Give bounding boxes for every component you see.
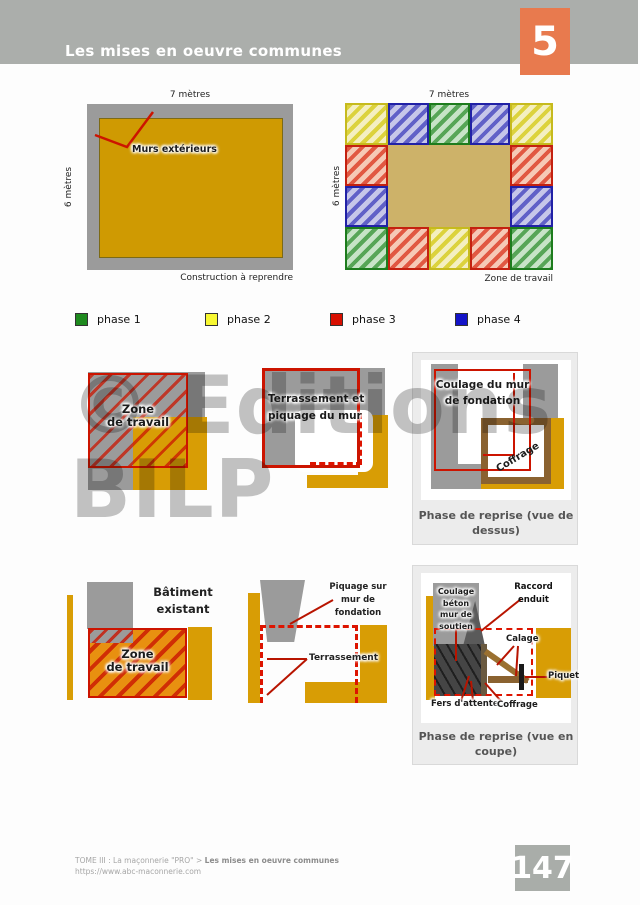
legend-label: phase 4 [477,313,521,326]
footer-breadcrumb: TOME III : La maçonnerie "PRO" > Les mis… [75,855,339,878]
plan-work-phases: 7 mètres 6 mètres Zone de travail [330,85,580,290]
diagram-area: Coulage béton mur de soutien Raccord end… [421,573,571,723]
wall-strip-shape [67,595,73,700]
legend-item: phase 4 [455,313,521,326]
legend-item: phase 3 [330,313,396,326]
terrassement-label: Terrassement et piquage du mur [268,391,364,425]
coulage-inner-line [513,413,515,456]
batiment-label: Bâtiment existant [153,584,213,619]
phase1-tile [510,227,553,270]
card-phase-reprise-coupe: Coulage béton mur de soutien Raccord end… [412,565,578,765]
phase3-swatch [330,313,343,326]
phase2-tile [429,227,470,270]
breadcrumb-prefix: TOME III : La maçonnerie "PRO" > [75,856,205,865]
breadcrumb-current: Les mises en oeuvre communes [205,856,339,865]
manual-page: Les mises en oeuvre communes 5 7 mètres … [0,0,640,905]
callout-leader-lines [60,85,310,290]
existing-building-shape [87,582,133,629]
terrassement-label: Terrassement [309,653,378,663]
plan-existing-construction: 7 mètres 6 mètres Murs extérieurs Constr… [60,85,310,290]
existing-building-shape [88,470,133,490]
legend-item: phase 2 [205,313,271,326]
zone-label: Zone de travail [88,403,188,429]
footer-url: https://www.abc-maconnerie.com [75,866,339,877]
coffrage-label: Coffrage [497,701,538,711]
zone-label: Zone de travail [88,648,187,674]
plan-caption: Zone de travail [345,274,553,284]
fers-attente-label: Fers d'attente [431,700,499,710]
legend-label: phase 2 [227,313,271,326]
phase3-tile [470,227,510,270]
figure-zone-travail-dessus: Zone de travail [70,365,215,497]
raccord-label: Raccord enduit [506,581,561,607]
dimension-side: 6 mètres [332,156,342,216]
callout-murs-exterieurs: Murs extérieurs [132,145,217,156]
phase-grid [345,103,553,270]
new-wall-shape [307,475,388,488]
interior-floor-shape [388,145,510,227]
legend-item: phase 1 [75,313,141,326]
card-phase-reprise-dessus: Coulage du mur de fondation Coffrage Pha… [412,352,578,545]
phase2-swatch [205,313,218,326]
plan-caption: Construction à reprendre [87,273,293,283]
phase3-tile [510,145,553,186]
phase1-tile [345,227,388,270]
figure-terrassement-piquage: Terrassement et piquage du mur [255,365,400,497]
phase1-swatch [75,313,88,326]
phase3-tile [345,145,388,186]
new-wall-shape [188,627,212,700]
figure-piquage-terrassement: Piquage sur mur de fondation Terrassemen… [245,578,390,708]
phase4-tile [470,103,510,145]
card-caption: Phase de reprise (vue en coupe) [413,729,579,760]
page-number-badge: 147 [515,845,570,891]
phase3-tile [388,227,429,270]
phase4-tile [345,186,388,227]
dimension-top: 7 mètres [345,90,553,100]
chapter-number-badge: 5 [520,8,570,75]
wall-footprint-hatch [90,630,133,643]
phase2-tile [510,103,553,145]
legend-label: phase 3 [352,313,396,326]
calage-label: Calage [506,635,538,645]
legend-label: phase 1 [97,313,141,326]
piquet-label: Piquet [548,672,579,682]
phase4-tile [388,103,429,145]
phase4-tile [510,186,553,227]
phase1-tile [429,103,470,145]
phase4-swatch [455,313,468,326]
figure-batiment-existant: Bâtiment existant Zone de travail [65,578,215,708]
card-caption: Phase de reprise (vue de dessus) [413,508,579,539]
page-title: Les mises en oeuvre communes [65,42,342,60]
diagram-area: Coulage du mur de fondation Coffrage [421,360,571,500]
soutien-label: Coulage béton mur de soutien [433,586,479,632]
phase2-tile [345,103,388,145]
coulage-label: Coulage du mur de fondation [434,378,531,410]
phase-legend: phase 1 phase 2 phase 3 phase 4 [0,313,640,333]
piquage-label: Piquage sur mur de fondation [327,581,389,619]
